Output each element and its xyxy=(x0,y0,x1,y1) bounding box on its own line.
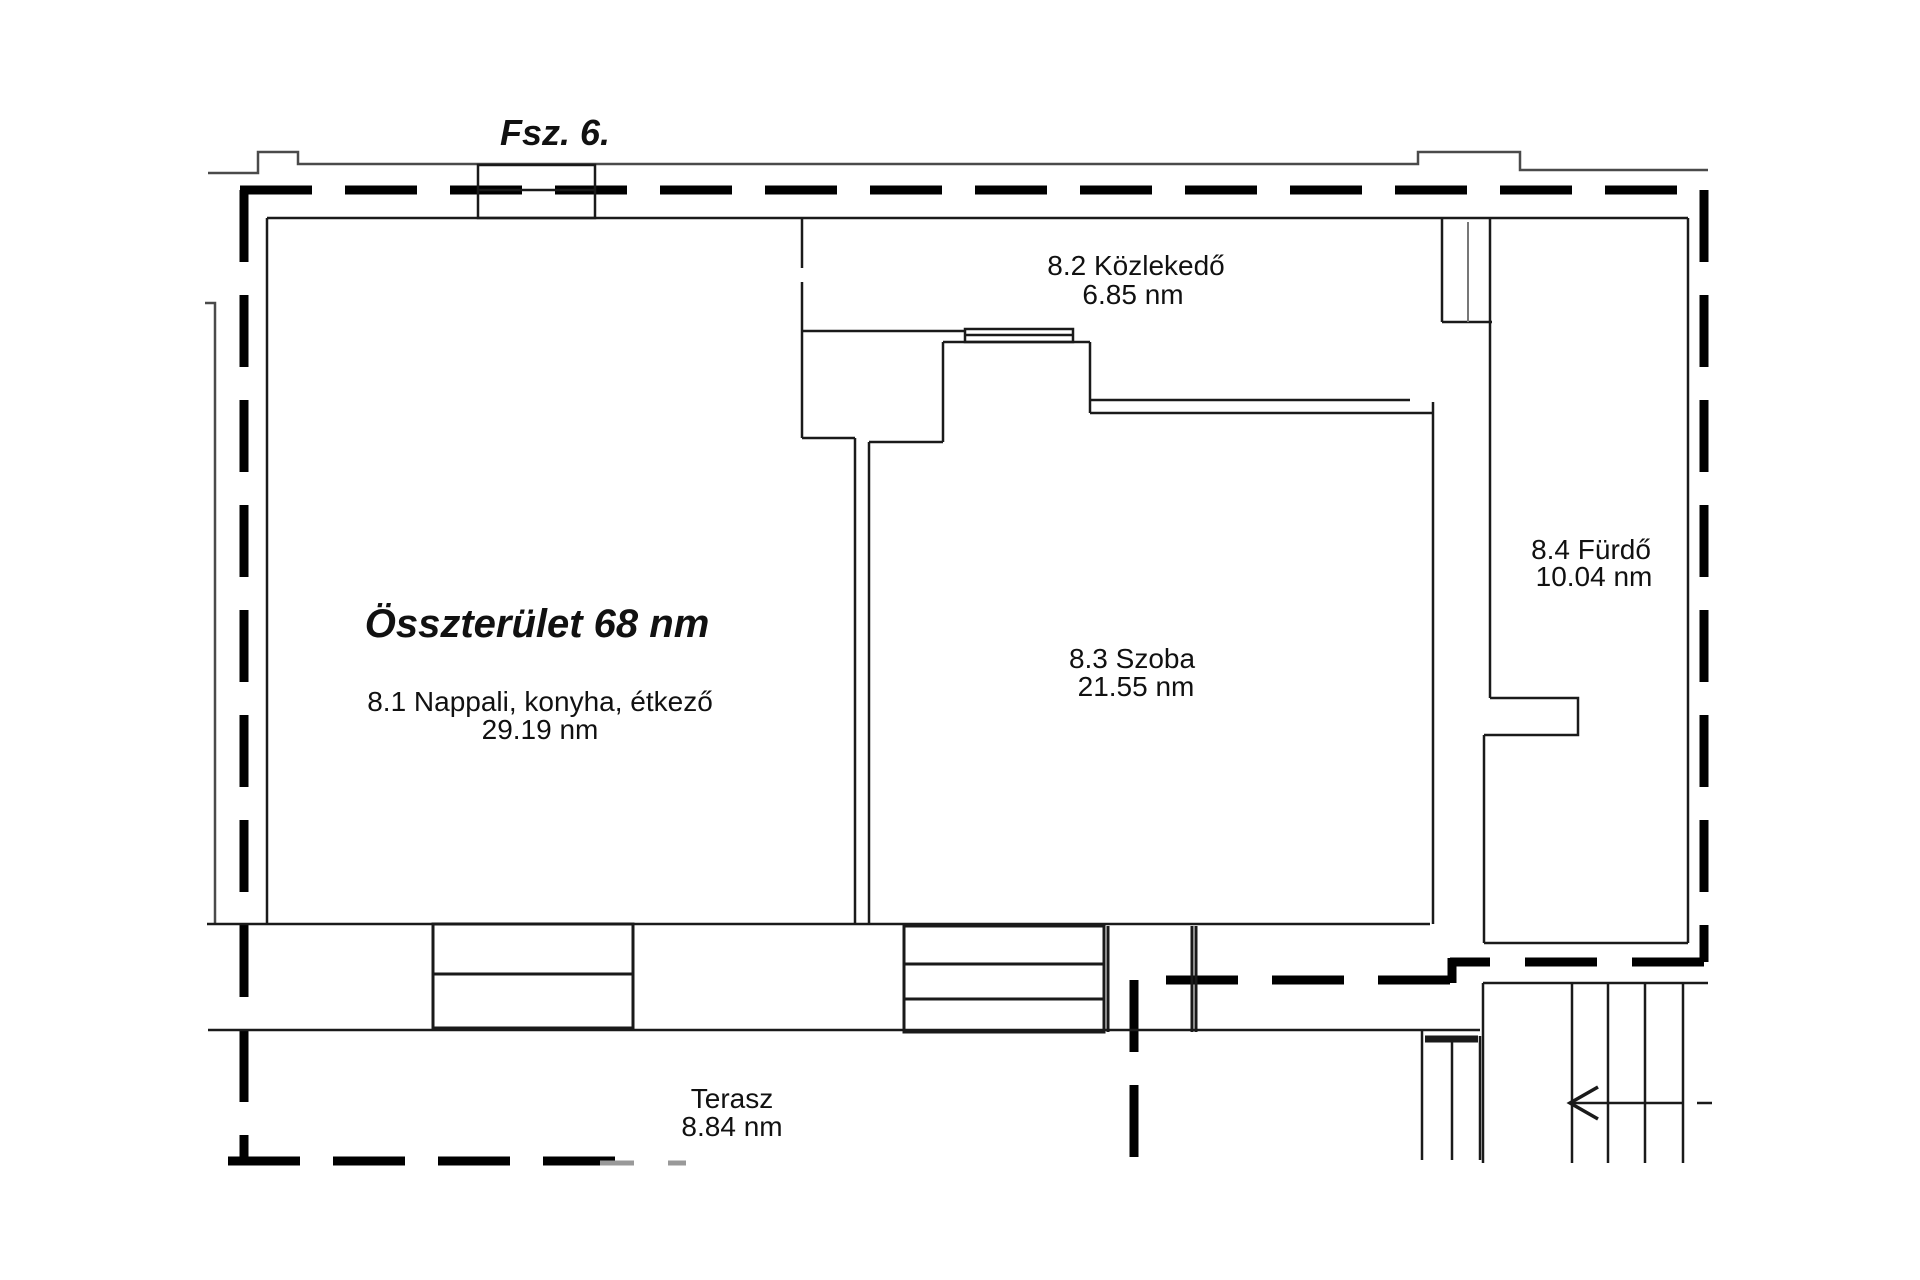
window-83-frame xyxy=(904,926,1104,1032)
terrace-name: Terasz xyxy=(691,1085,773,1113)
room-8-1-area: 29.19 nm xyxy=(482,716,599,744)
bottom-windows xyxy=(433,924,1196,1032)
bathroom-notch xyxy=(1484,698,1578,735)
outer-contour-lines xyxy=(205,152,1708,924)
landing-strip xyxy=(1422,1030,1480,1160)
room-8-3-area: 21.55 nm xyxy=(1078,673,1195,701)
room-8-1-name: 8.1 Nappali, konyha, étkező xyxy=(367,688,713,716)
outer-top-line xyxy=(208,152,1708,173)
room-8-2-name: 8.2 Közlekedő xyxy=(1047,252,1224,280)
outer-left-line xyxy=(205,303,215,924)
floor-plan: Fsz. 6. Összterület 68 nm 8.1 Nappali, k… xyxy=(0,0,1920,1280)
terrace-area: 8.84 nm xyxy=(681,1113,782,1141)
floor-plan-linework xyxy=(0,0,1920,1280)
room-8-2-area: 6.85 nm xyxy=(1082,281,1183,309)
room-8-4-name: 8.4 Fürdő xyxy=(1531,536,1651,564)
staircase xyxy=(1483,983,1712,1163)
room-8-4-area: 10.04 nm xyxy=(1536,563,1653,591)
room-8-3-name: 8.3 Szoba xyxy=(1069,645,1195,673)
total-area-label: Összterület 68 nm xyxy=(365,610,710,638)
window-81-frame xyxy=(433,924,633,1028)
plan-title: Fsz. 6. xyxy=(500,112,610,154)
